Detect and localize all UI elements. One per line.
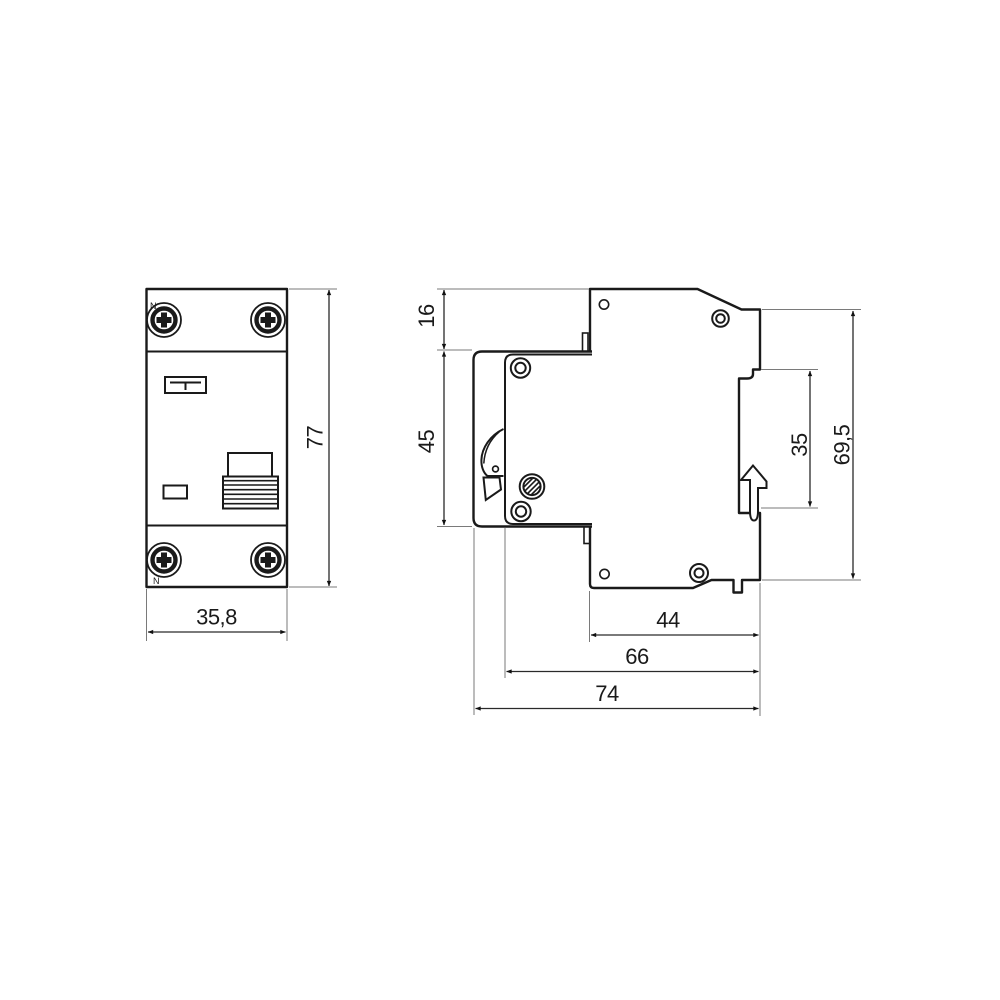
dim-label-69-5: 69,5 [830,424,855,465]
faceplate-rivet-bottom [511,502,530,521]
lever-pivot-dot [493,466,499,472]
front-clip-tab-top [583,333,589,352]
toggle-handle [228,453,272,477]
dim-front-height: 77 [289,289,337,587]
neutral-terminal-label-top: N [150,301,157,311]
dim-label-77: 77 [303,426,328,450]
breaker-dimension-drawing: N N 77 35,8 [0,0,1000,1000]
terminal-screw-icon-bottom-right [251,543,285,577]
dim-label-35-8: 35,8 [196,605,237,630]
dim-label-66: 66 [625,644,649,669]
technical-drawing-page: N N 77 35,8 [0,0,1000,1000]
dim-label-35: 35 [787,433,812,457]
slotted-screw-icon [520,474,545,499]
dim-rail-recess: 35 [761,370,818,509]
dim-front-panel-height: 45 [414,352,472,527]
dim-front-width: 35,8 [147,589,288,641]
front-view: N N 77 35,8 [147,289,338,641]
dim-label-16: 16 [414,304,439,328]
side-body-outline [590,289,760,593]
faceplate-rivet-top [511,358,530,377]
dim-top-section: 16 [414,289,589,350]
terminal-screw-icon-bottom-left [147,543,181,577]
body-rivet-top [712,310,729,327]
side-view: 16 45 35 69,5 44 [414,289,861,716]
dim-label-44: 44 [656,608,680,633]
body-rivet-bottom [690,564,708,582]
dim-label-45: 45 [414,430,439,454]
dim-label-74: 74 [595,681,619,706]
terminal-screw-icon-top-right [251,303,285,337]
toggle-switch [223,453,278,509]
neutral-terminal-label-bottom: N [153,576,160,586]
